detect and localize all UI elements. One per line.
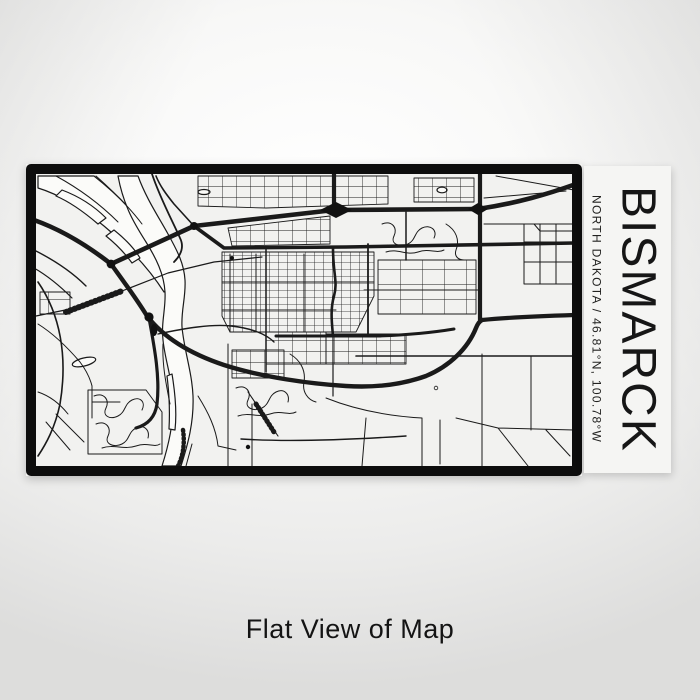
map-panel (26, 164, 582, 476)
bismarck-map-graphic (26, 164, 582, 476)
product-photo: NORTH DAKOTA / 46.81°N, 100.78°W BISMARC… (0, 0, 700, 700)
caption-text: Flat View of Map (0, 614, 700, 645)
city-subtitle: NORTH DAKOTA / 46.81°N, 100.78°W (590, 195, 604, 443)
map-label-panel: NORTH DAKOTA / 46.81°N, 100.78°W BISMARC… (584, 166, 671, 473)
city-title: BISMARCK (611, 186, 666, 453)
